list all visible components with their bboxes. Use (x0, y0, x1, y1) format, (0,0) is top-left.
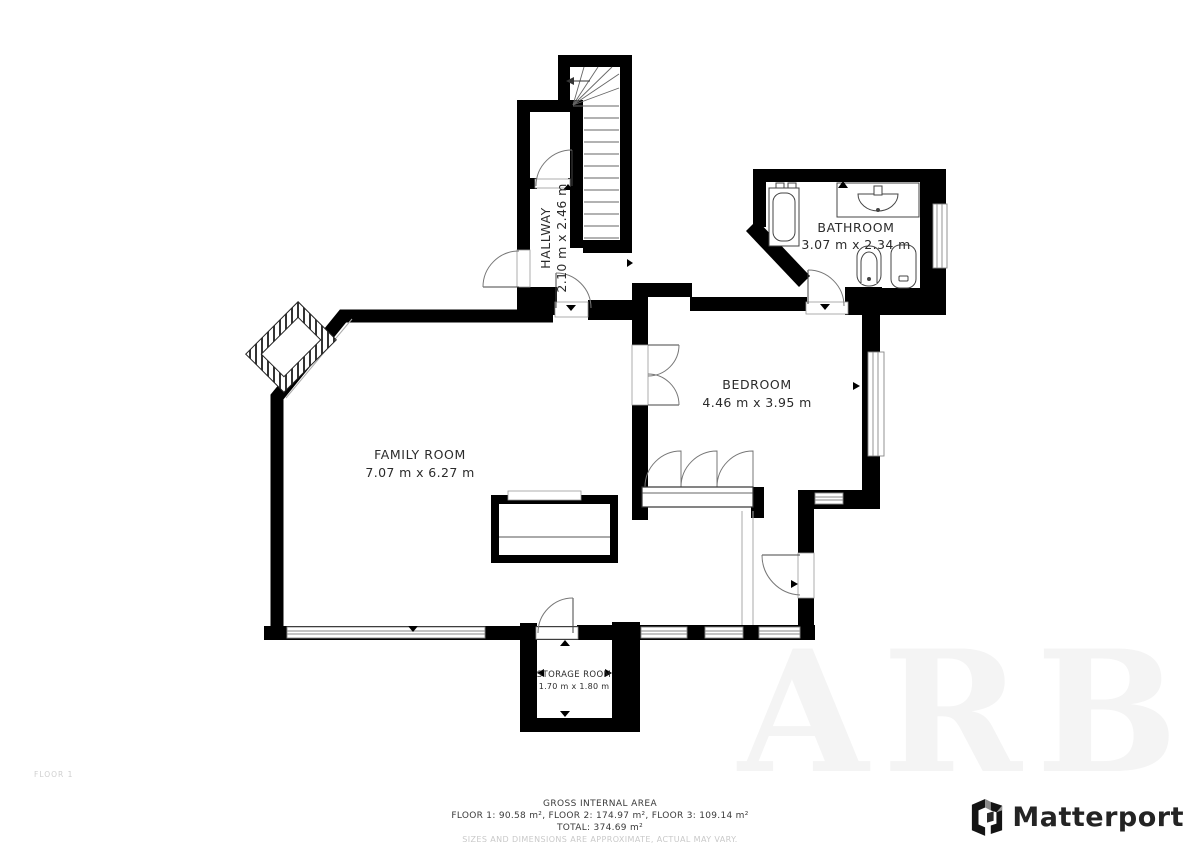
window-corridor-2 (705, 627, 743, 638)
corridor-opening (742, 511, 753, 625)
door-bathroom (808, 270, 844, 306)
window-bedroom (868, 352, 884, 456)
bathroom-name: BATHROOM (817, 220, 894, 235)
sink-icon (837, 183, 919, 217)
room-label-family-room: FAMILY ROOM 7.07 m x 6.27 m (365, 447, 474, 480)
wardrobe (642, 487, 753, 507)
disclaimer: SIZES AND DIMENSIONS ARE APPROXIMATE, AC… (0, 835, 1200, 844)
floor-plan-drawing: FAMILY ROOM 7.07 m x 6.27 m BEDROOM 4.46… (0, 0, 1200, 848)
family-room-dims: 7.07 m x 6.27 m (365, 465, 474, 480)
storage-room-dims: 1.70 m x 1.80 m (539, 682, 610, 691)
floor-plan-page: ARB (0, 0, 1200, 848)
storage-room-name: STORAGE ROOM (537, 670, 612, 680)
hallway-name: HALLWAY (538, 207, 553, 269)
bathroom-dims: 3.07 m x 2.34 m (801, 237, 910, 252)
room-label-hallway: HALLWAY 2.10 m x 2.46 m (538, 183, 569, 292)
matterport-logo-text: Matterport (1012, 802, 1184, 833)
floor-label: FLOOR 1 (34, 770, 73, 779)
bidet-icon (857, 246, 881, 286)
bedroom-dims: 4.46 m x 3.95 m (702, 395, 811, 410)
family-room-name: FAMILY ROOM (374, 447, 466, 462)
window-family-room (287, 627, 485, 638)
windows (287, 204, 947, 638)
room-label-bathroom: BATHROOM 3.07 m x 2.34 m (801, 220, 910, 252)
door-corridor-right (762, 555, 800, 595)
hallway-dims: 2.10 m x 2.46 m (554, 183, 569, 292)
matterport-logo-icon (970, 798, 1004, 836)
matterport-branding: Matterport (970, 798, 1184, 836)
fireplace-icon (246, 302, 337, 393)
window-bathroom (933, 204, 947, 268)
window-bedroom-small (815, 493, 843, 504)
door-entry-left (483, 251, 519, 287)
bathtub-icon (769, 183, 799, 246)
room-label-storage-room: STORAGE ROOM 1.70 m x 1.80 m (537, 670, 612, 691)
closet-bifold-doors (645, 451, 753, 487)
bedroom-name: BEDROOM (722, 377, 791, 392)
room-label-bedroom: BEDROOM 4.46 m x 3.95 m (702, 377, 811, 410)
door-bedroom-double (648, 345, 679, 405)
window-corridor-3 (759, 627, 800, 638)
window-corridor-1 (641, 627, 687, 638)
